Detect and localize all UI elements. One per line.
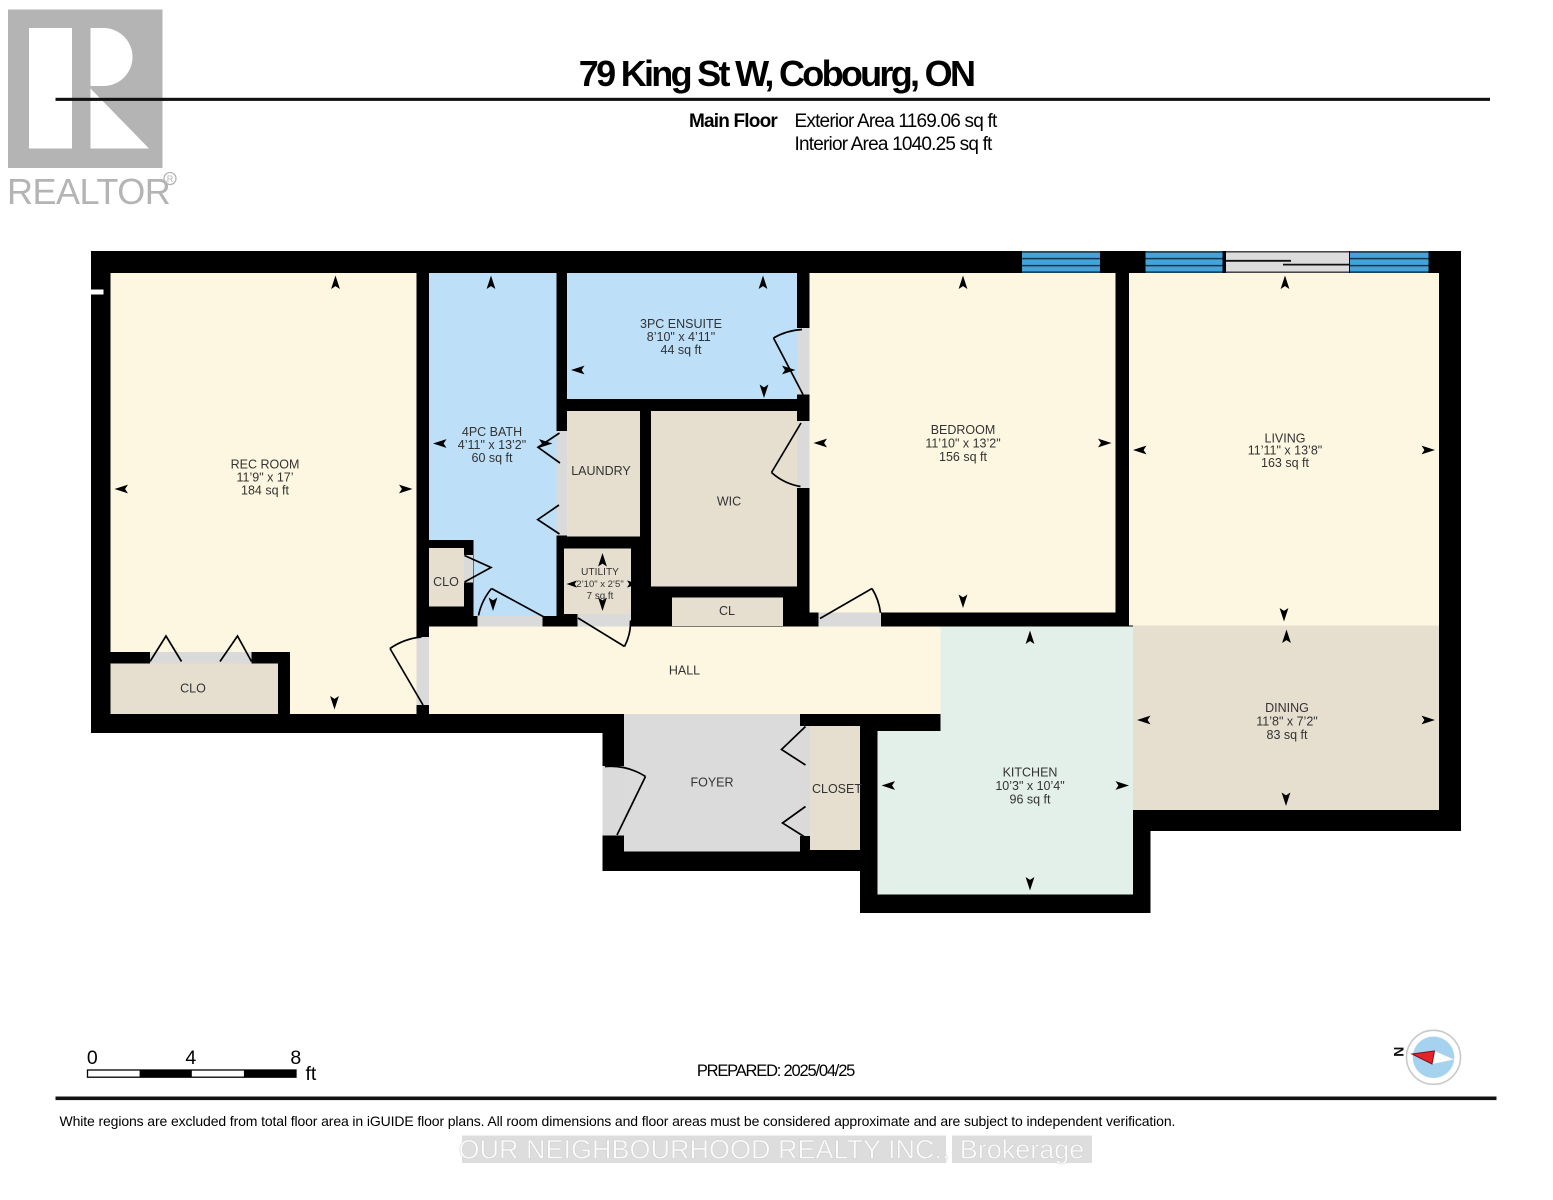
svg-text:11’9" x 17’: 11’9" x 17’ bbox=[236, 471, 293, 485]
svg-text:DINING: DINING bbox=[1265, 701, 1309, 715]
svg-text:8’10" x 4’11": 8’10" x 4’11" bbox=[647, 330, 715, 344]
svg-text:Exterior Area 1169.06 sq ft: Exterior Area 1169.06 sq ft bbox=[795, 111, 998, 132]
svg-text:UTILITY: UTILITY bbox=[581, 567, 619, 578]
svg-text:CL: CL bbox=[719, 604, 735, 618]
svg-text:ft: ft bbox=[306, 1063, 317, 1085]
svg-text:CLO: CLO bbox=[433, 575, 459, 589]
svg-text:Brokerage: Brokerage bbox=[960, 1135, 1085, 1165]
svg-text:4PC BATH: 4PC BATH bbox=[462, 425, 522, 439]
svg-text:10’3" x 10’4": 10’3" x 10’4" bbox=[995, 779, 1064, 793]
svg-text:60 sq ft: 60 sq ft bbox=[472, 451, 514, 465]
svg-text:KITCHEN: KITCHEN bbox=[1003, 766, 1058, 780]
svg-text:2’10" x 2’5": 2’10" x 2’5" bbox=[576, 579, 623, 590]
svg-text:96 sq ft: 96 sq ft bbox=[1010, 792, 1052, 806]
svg-text:CLOSET: CLOSET bbox=[812, 782, 862, 796]
svg-text:FOYER: FOYER bbox=[690, 776, 733, 790]
svg-text:R: R bbox=[167, 174, 174, 184]
svg-text:REALTOR: REALTOR bbox=[7, 171, 170, 212]
svg-text:Interior Area 1040.25 sq ft: Interior Area 1040.25 sq ft bbox=[795, 134, 994, 155]
svg-text:LAUNDRY: LAUNDRY bbox=[571, 464, 631, 478]
svg-text:BEDROOM: BEDROOM bbox=[931, 423, 996, 437]
svg-text:184 sq ft: 184 sq ft bbox=[241, 484, 289, 498]
svg-text:163 sq ft: 163 sq ft bbox=[1261, 456, 1309, 470]
svg-text:4: 4 bbox=[185, 1047, 196, 1069]
svg-text:11’8" x 7’2": 11’8" x 7’2" bbox=[1256, 715, 1317, 729]
svg-text:8: 8 bbox=[290, 1047, 301, 1069]
svg-text:White regions are excluded fro: White regions are excluded from total fl… bbox=[60, 1113, 1176, 1129]
svg-text:4’11" x 13’2": 4’11" x 13’2" bbox=[458, 438, 526, 452]
svg-text:7 sq ft: 7 sq ft bbox=[587, 591, 614, 602]
svg-text:Main Floor: Main Floor bbox=[689, 111, 778, 132]
svg-text:HALL: HALL bbox=[669, 664, 700, 678]
svg-text:11’10" x 13’2": 11’10" x 13’2" bbox=[925, 437, 1000, 451]
svg-text:79 King St W, Cobourg, ON: 79 King St W, Cobourg, ON bbox=[579, 53, 974, 94]
svg-text:OUR NEIGHBOURHOOD REALTY INC.,: OUR NEIGHBOURHOOD REALTY INC., bbox=[458, 1135, 949, 1165]
svg-text:83 sq ft: 83 sq ft bbox=[1267, 728, 1309, 742]
svg-text:44 sq ft: 44 sq ft bbox=[661, 343, 703, 357]
svg-text:WIC: WIC bbox=[717, 495, 741, 509]
svg-text:N: N bbox=[1391, 1047, 1407, 1057]
svg-text:156 sq ft: 156 sq ft bbox=[939, 450, 987, 464]
svg-text:REC ROOM: REC ROOM bbox=[231, 458, 300, 472]
svg-text:CLO: CLO bbox=[180, 682, 206, 696]
svg-text:0: 0 bbox=[87, 1047, 98, 1069]
svg-text:PREPARED: 2025/04/25: PREPARED: 2025/04/25 bbox=[697, 1062, 855, 1080]
svg-text:3PC ENSUITE: 3PC ENSUITE bbox=[640, 317, 722, 331]
